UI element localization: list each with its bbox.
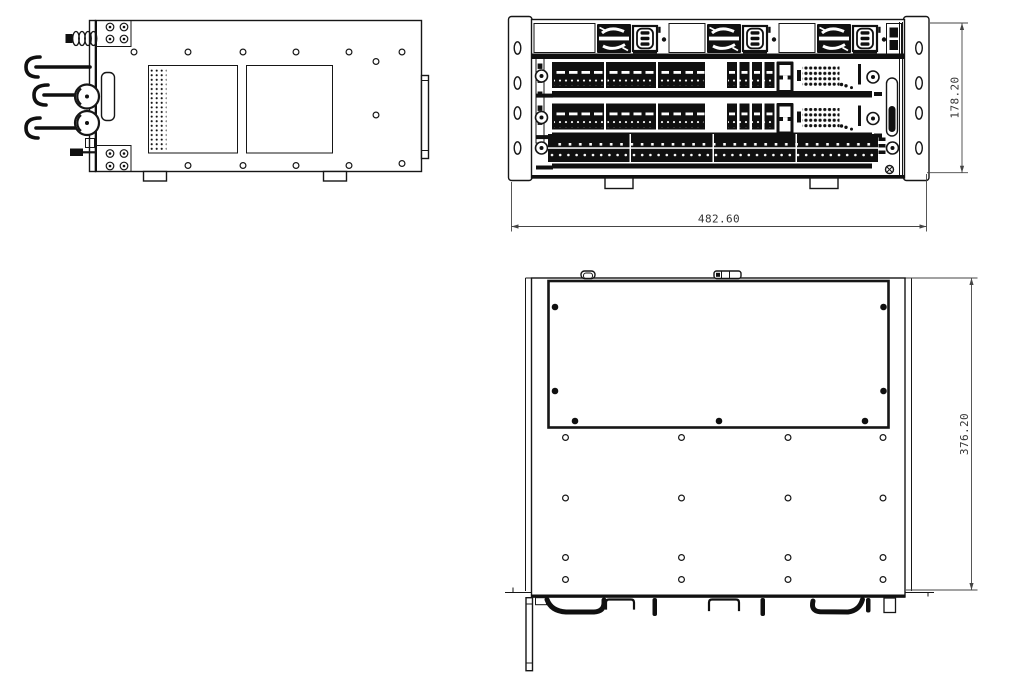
mounting-ear-right (904, 17, 930, 181)
side-vent-perforation (151, 68, 167, 152)
side-knob-top (75, 85, 99, 109)
top-ear-right (905, 593, 934, 597)
side-handle-hook-top (26, 57, 90, 77)
dimension-front-height: 178.20 (927, 23, 968, 173)
top-rear-latch (714, 271, 741, 279)
dimension-front-height-label: 178.20 (949, 76, 962, 118)
psu-pull-left (606, 600, 634, 609)
side-foot-left (144, 172, 167, 182)
top-front-protrusions (526, 598, 896, 671)
top-front-edge (532, 595, 906, 598)
side-guide-rail (102, 73, 115, 121)
side-chassis-body (96, 21, 422, 172)
side-rear-rail (422, 76, 429, 159)
front-foot-left (605, 178, 633, 189)
dimension-front-width: 482.60 (512, 174, 927, 232)
top-ear-left (505, 588, 532, 593)
top-view (505, 271, 934, 671)
psu-bay-separator (532, 54, 905, 60)
psu-pull-middle (709, 600, 739, 611)
ejector-slot-module (887, 78, 898, 136)
patch-card-slot-3 (536, 134, 899, 170)
captive-screw-icon (886, 166, 894, 174)
front-foot-right (810, 178, 838, 189)
top-chassis-body (532, 278, 906, 597)
dimension-front-width-label: 482.60 (698, 213, 740, 226)
card-handle-left (547, 600, 604, 613)
engineering-drawing-page: 178.20 482.60 376.20 (0, 0, 1026, 687)
dimension-top-depth-label: 376.20 (958, 413, 971, 455)
side-knob-bottom (75, 111, 99, 135)
front-view (509, 17, 930, 189)
side-foot-right (324, 172, 347, 182)
mounting-ear-left (509, 17, 533, 181)
dimension-top-depth: 376.20 (906, 278, 978, 590)
card-handle-right (812, 600, 862, 613)
side-view (26, 21, 429, 182)
drawing-canvas: 178.20 482.60 376.20 (0, 0, 1026, 687)
top-rear-knob (581, 271, 595, 279)
